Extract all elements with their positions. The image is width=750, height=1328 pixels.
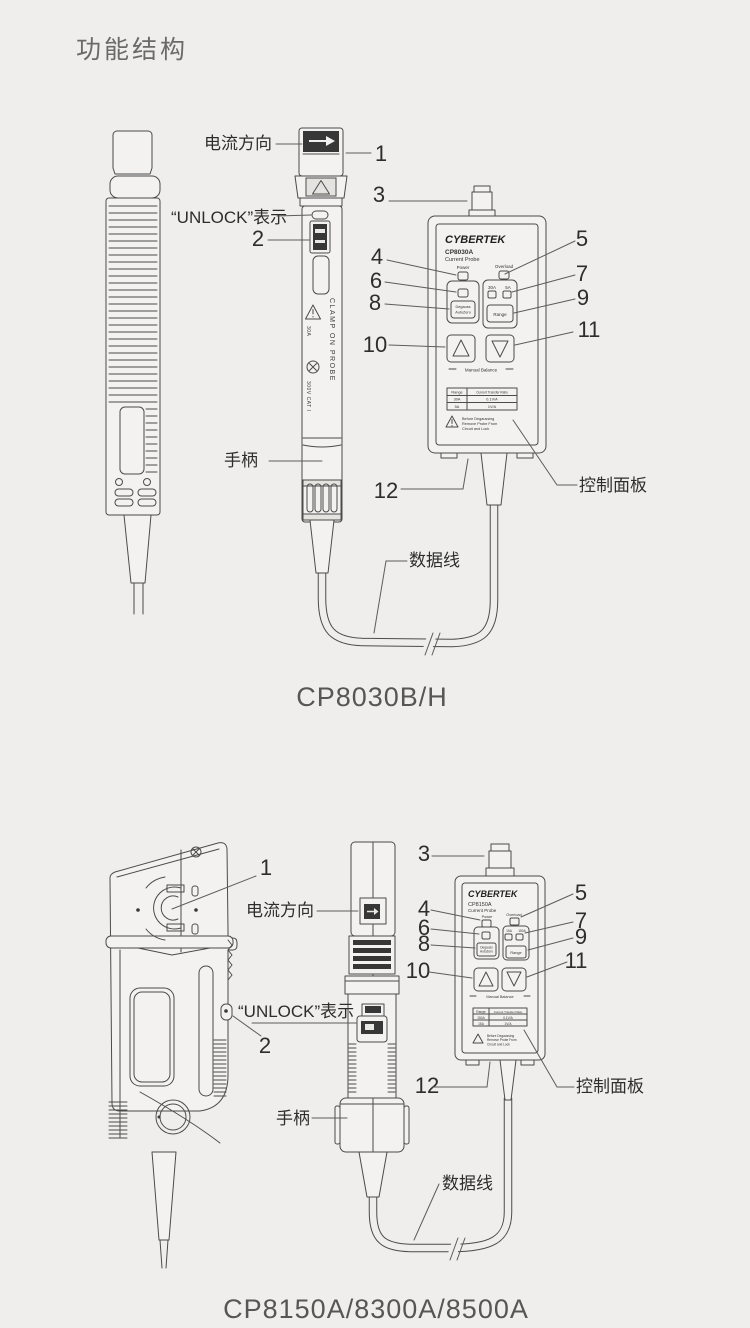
probe-collar xyxy=(345,976,399,994)
rating-current-text: 30A xyxy=(305,326,311,337)
strain-relief xyxy=(152,1152,176,1240)
callout-number-3: 3 xyxy=(373,182,385,207)
bnc-connector xyxy=(472,192,492,210)
table-cell: 0.1V/A xyxy=(486,398,498,402)
degauss-label-1: Degauss xyxy=(456,305,471,309)
data-cable-1 xyxy=(322,500,494,657)
probe-side-view-1 xyxy=(106,131,160,614)
callout-number-5: 5 xyxy=(575,880,587,905)
brand-logo: CYBERTEK xyxy=(445,234,506,246)
clamp-side-view xyxy=(106,843,237,1268)
diagram-svg: 30A 300V CAT I CLAMP ON PROBE xyxy=(0,0,750,1328)
callout-number-12: 12 xyxy=(415,1073,439,1098)
panel-foot xyxy=(517,453,533,458)
strain-relief xyxy=(359,1152,387,1197)
callout-data-cable: 数据线 xyxy=(409,551,460,570)
table-cell: 0.1V/A xyxy=(503,1016,513,1020)
degauss-label-2: AutoZero xyxy=(455,311,471,315)
figure-cp8150: CYBERTEK CP8150A Current Probe Power Ove… xyxy=(106,841,644,1324)
callout-current-direction: 电流方向 xyxy=(246,901,314,920)
callout-number-2: 2 xyxy=(252,226,264,251)
table-cell: 150A xyxy=(477,1016,485,1020)
callout-line xyxy=(433,1062,490,1087)
callout-current-direction: 电流方向 xyxy=(204,134,272,153)
control-panel-1: CYBERTEK CP8030A Current Probe Power Ove… xyxy=(428,186,546,505)
vent-slot xyxy=(353,956,391,961)
clamp-band xyxy=(106,936,233,948)
model-text: CP8030A xyxy=(445,249,473,256)
callouts-1: 电流方向 1 “UNLOCK”表示 2 3 4 5 6 7 8 xyxy=(171,134,647,633)
callout-number-1: 1 xyxy=(260,855,272,880)
range-a-label: 30A xyxy=(488,285,496,290)
table-col-range: Range xyxy=(451,391,462,395)
callout-unlock: “UNLOCK”表示 xyxy=(171,208,287,227)
callout-number-3: 3 xyxy=(418,841,430,866)
type-text: Current Probe xyxy=(445,257,480,263)
range-b-label: 5A xyxy=(505,285,511,290)
strain-relief xyxy=(310,520,334,573)
strain-relief xyxy=(124,515,151,583)
callout-handle: 手柄 xyxy=(224,451,258,470)
probe-body-side xyxy=(106,198,160,515)
callout-handle: 手柄 xyxy=(276,1109,310,1128)
bnc-connector xyxy=(489,851,511,868)
slider-switch xyxy=(313,224,327,250)
cable-stub xyxy=(160,1240,168,1268)
callout-number-9: 9 xyxy=(577,285,589,310)
panel-foot xyxy=(466,1060,479,1065)
callout-unlock: “UNLOCK”表示 xyxy=(238,1002,354,1021)
brand-logo: CYBERTEK xyxy=(468,889,519,899)
vent-slot xyxy=(353,964,391,969)
callout-control-panel: 控制面板 xyxy=(576,1077,644,1096)
bnc-cap xyxy=(474,186,490,192)
probe-collar-side xyxy=(110,176,160,198)
handle-tab xyxy=(404,1106,409,1144)
callout-number-10: 10 xyxy=(406,958,430,983)
probe-front-view-1: 30A 300V CAT I CLAMP ON PROBE xyxy=(295,128,347,573)
table-col-ratio: Current Transfer Ratio xyxy=(494,1010,523,1014)
callout-control-panel: 控制面板 xyxy=(579,476,647,495)
callouts-2: 1 电流方向 3 4 5 6 7 8 9 10 11 xyxy=(172,841,644,1240)
vent-slot xyxy=(353,948,391,953)
handle-tab xyxy=(335,1106,340,1144)
panel-strain-relief xyxy=(481,453,507,505)
bnc-cap xyxy=(491,844,509,851)
manual-page: 功能结构 xyxy=(0,0,750,1328)
clamp-on-probe-text: CLAMP ON PROBE xyxy=(328,298,335,382)
table-cell: 1V/A xyxy=(488,405,497,409)
callout-number-1: 1 xyxy=(375,141,387,166)
power-label: Power xyxy=(482,915,493,919)
callout-line xyxy=(374,561,407,633)
figure-2-caption: CP8150A/8300A/8500A xyxy=(223,1294,529,1324)
callout-number-12: 12 xyxy=(374,478,398,503)
callout-number-11: 11 xyxy=(565,948,588,973)
callout-number-10: 10 xyxy=(363,332,387,357)
panel-strain-relief xyxy=(500,1060,516,1100)
probe-head-side xyxy=(113,131,152,174)
warning-line-3: Circuit and Lock xyxy=(487,1042,510,1046)
table-col-ratio: Current Transfer Ratio xyxy=(476,391,508,395)
rating-voltage-text: 300V CAT I xyxy=(305,381,311,411)
warning-line-1: Before Degaussing xyxy=(462,417,494,421)
callout-line xyxy=(414,1184,439,1240)
table-cell: 15A xyxy=(478,1022,485,1026)
vent-slot xyxy=(353,940,391,945)
control-panel-2: CYBERTEK CP8150A Current Probe Power Ove… xyxy=(455,844,545,1100)
table-cell: 5A xyxy=(455,405,460,409)
warning-line-2: Remove Probe From xyxy=(462,422,497,426)
range-a-label: 15A xyxy=(506,929,513,933)
probe-handle xyxy=(340,1098,404,1152)
figure-cp8030: 30A 300V CAT I CLAMP ON PROBE xyxy=(106,128,647,712)
callout-number-4: 4 xyxy=(371,244,383,269)
bnc-flange xyxy=(486,868,514,876)
callout-number-5: 5 xyxy=(576,226,588,251)
warning-line-3: Circuit and Lock xyxy=(462,427,489,431)
callout-line xyxy=(401,459,468,489)
bnc-flange xyxy=(469,210,495,216)
degauss-label-2: AutoZero xyxy=(480,950,493,954)
type-text: Current Probe xyxy=(468,908,497,913)
manual-balance-label: Manual Balance xyxy=(465,368,498,373)
panel-foot xyxy=(521,1060,534,1065)
callout-number-7: 7 xyxy=(576,261,588,286)
callout-number-8: 8 xyxy=(418,931,430,956)
callout-data-cable: 数据线 xyxy=(442,1174,493,1193)
overload-label: Overload xyxy=(495,264,514,269)
power-label: Power xyxy=(457,265,470,270)
cable-stub xyxy=(134,583,143,614)
overload-label: Overload xyxy=(506,913,521,917)
range-button-label: Range xyxy=(510,951,521,955)
callout-number-2: 2 xyxy=(259,1033,271,1058)
range-button-label: Range xyxy=(493,312,507,317)
manual-balance-label: Manual Balance xyxy=(486,995,513,999)
panel-foot xyxy=(441,453,457,458)
callout-number-8: 8 xyxy=(369,290,381,315)
callout-number-11: 11 xyxy=(578,317,601,342)
callout-number-9: 9 xyxy=(575,924,587,949)
side-ribs xyxy=(214,1040,226,1096)
range-b-label: 150A xyxy=(518,929,526,933)
figure-1-caption: CP8030B/H xyxy=(296,682,448,712)
table-cell: 1V/A xyxy=(505,1022,513,1026)
table-col-range: Range xyxy=(476,1010,486,1014)
table-cell: 30A xyxy=(454,398,461,402)
